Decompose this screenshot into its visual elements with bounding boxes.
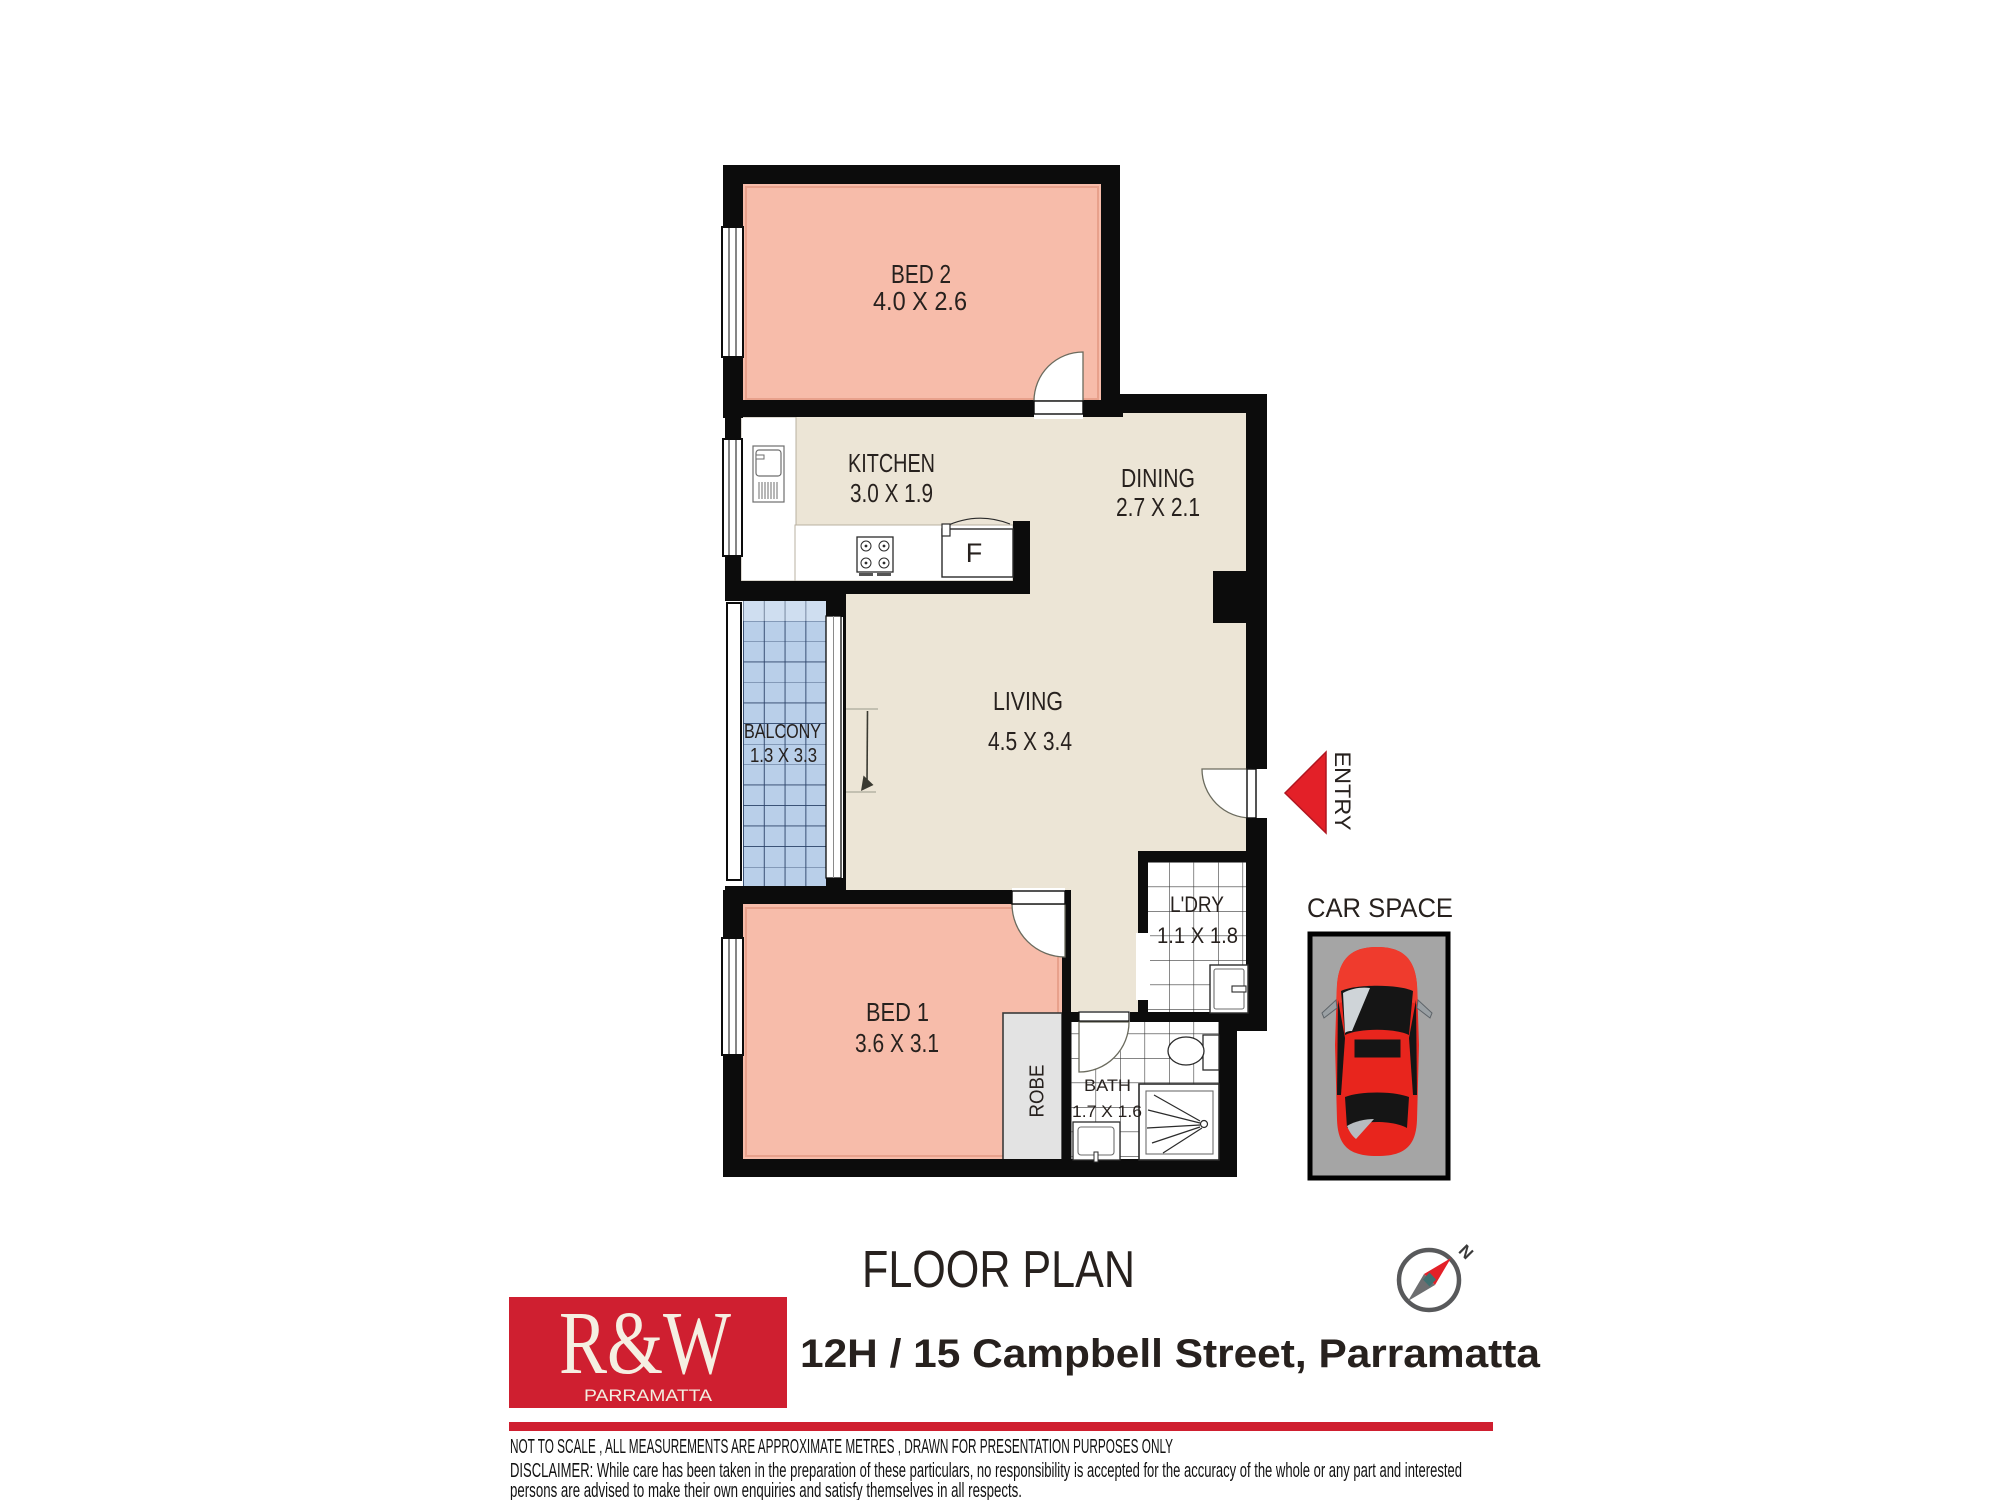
svg-text:2.7 X 2.1: 2.7 X 2.1 bbox=[1116, 492, 1200, 522]
svg-text:BED 2: BED 2 bbox=[891, 259, 951, 289]
svg-text:persons are advised to make th: persons are advised to make their own en… bbox=[510, 1480, 1022, 1500]
svg-text:LIVING: LIVING bbox=[993, 686, 1063, 716]
svg-text:FLOOR PLAN: FLOOR PLAN bbox=[862, 1241, 1135, 1299]
svg-text:CAR SPACE: CAR SPACE bbox=[1307, 893, 1453, 923]
svg-text:BALCONY: BALCONY bbox=[744, 721, 821, 743]
svg-text:F: F bbox=[966, 538, 983, 568]
svg-text:1.7 X 1.6: 1.7 X 1.6 bbox=[1072, 1102, 1142, 1121]
svg-text:NOT TO SCALE , ALL MEASUREMENT: NOT TO SCALE , ALL MEASUREMENTS ARE APPR… bbox=[510, 1436, 1173, 1458]
svg-text:ROBE: ROBE bbox=[1026, 1065, 1048, 1118]
svg-text:PARRAMATTA: PARRAMATTA bbox=[584, 1386, 713, 1405]
svg-text:R&W: R&W bbox=[559, 1294, 731, 1393]
svg-text:1.1 X 1.8: 1.1 X 1.8 bbox=[1157, 923, 1238, 948]
svg-text:KITCHEN: KITCHEN bbox=[848, 448, 935, 478]
svg-text:DINING: DINING bbox=[1121, 463, 1195, 493]
svg-text:1.3 X 3.3: 1.3 X 3.3 bbox=[750, 745, 817, 767]
svg-text:3.6 X 3.1: 3.6 X 3.1 bbox=[855, 1028, 939, 1058]
svg-text:L'DRY: L'DRY bbox=[1170, 892, 1224, 917]
svg-text:12H / 15 Campbell Street, Parr: 12H / 15 Campbell Street, Parramatta bbox=[800, 1332, 1541, 1376]
svg-text:DISCLAIMER: While care has be: DISCLAIMER: While care has been taken in… bbox=[510, 1460, 1462, 1482]
svg-text:4.5 X 3.4: 4.5 X 3.4 bbox=[988, 726, 1072, 756]
svg-text:BED 1: BED 1 bbox=[866, 997, 929, 1027]
svg-text:4.0 X 2.6: 4.0 X 2.6 bbox=[873, 286, 967, 316]
svg-text:ENTRY: ENTRY bbox=[1330, 752, 1355, 831]
svg-text:3.0 X 1.9: 3.0 X 1.9 bbox=[850, 478, 933, 508]
svg-text:BATH: BATH bbox=[1084, 1076, 1131, 1095]
